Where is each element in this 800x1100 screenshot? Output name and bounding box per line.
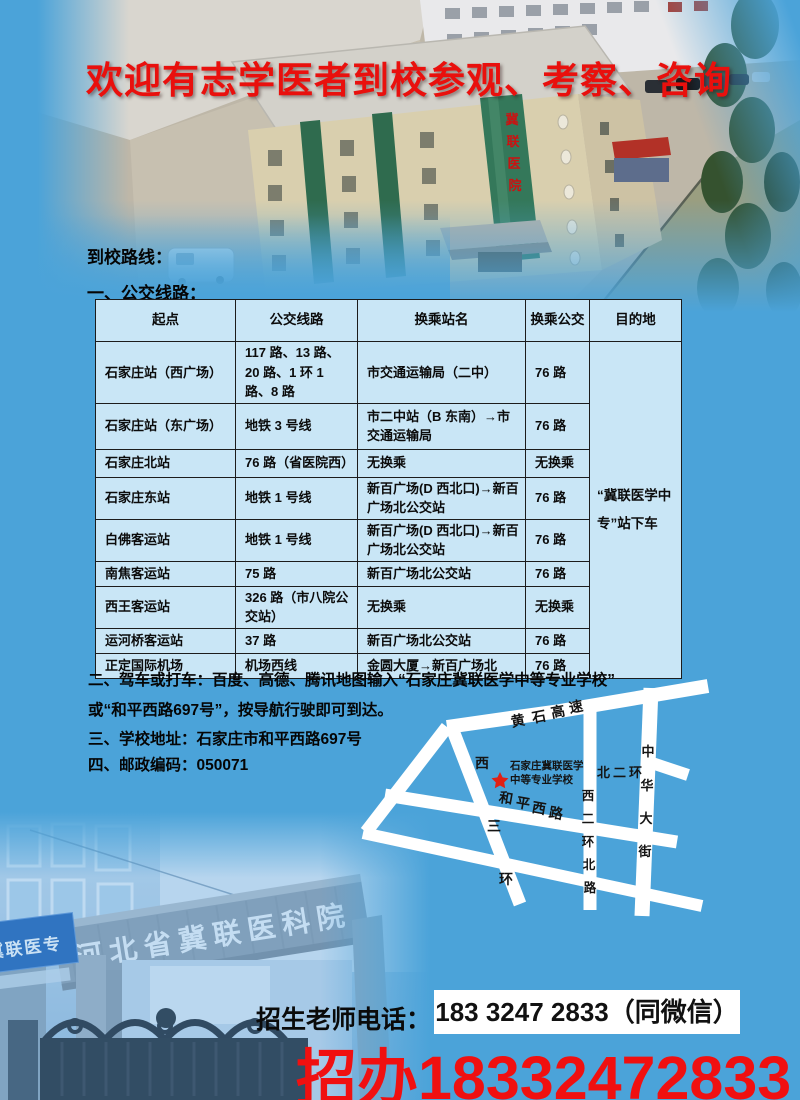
cell-start: 石家庄站（西广场）	[96, 342, 236, 404]
cell-start: 西王客运站	[96, 586, 236, 628]
svg-text:速: 速	[567, 697, 584, 715]
label-north-second-ring: 北二环	[597, 765, 645, 780]
col-header-lines: 公交线路	[236, 300, 358, 342]
bus-routes-table: 起点 公交线路 换乘站名 换乘公交 目的地 石家庄站（西广场） 117 路、13…	[95, 299, 682, 679]
col-header-transfer-bus: 换乘公交	[526, 300, 590, 342]
road-zhonghua-street	[642, 688, 651, 916]
cell-lines: 地铁 1 号线	[236, 477, 358, 519]
cell-transfer-station: 新百广场北公交站	[358, 628, 526, 653]
cell-start: 石家庄北站	[96, 449, 236, 477]
map-school-label-line1: 石家庄冀联医学	[509, 759, 584, 772]
cell-transfer-station: 新百广场(D 西北口)→新百广场北公交站	[358, 519, 526, 561]
svg-text:华: 华	[640, 778, 653, 793]
cell-start: 白佛客运站	[96, 519, 236, 561]
svg-text:西: 西	[531, 799, 548, 817]
table-header-row: 起点 公交线路 换乘站名 换乘公交 目的地	[96, 300, 682, 342]
svg-text:北: 北	[583, 857, 596, 872]
poster-root: 冀 联 医 院	[0, 0, 800, 1100]
cell-start: 运河桥客运站	[96, 628, 236, 653]
cell-start: 石家庄站（东广场）	[96, 403, 236, 449]
cell-transfer-station: 无换乘	[358, 449, 526, 477]
cell-transfer-station: 新百广场(D 西北口)→新百广场北公交站	[358, 477, 526, 519]
location-map: 黄 石 高 速 和 平 西 路 西 三 环 西 二 环 北 路	[340, 678, 800, 954]
road-ring-branch	[366, 727, 447, 832]
svg-text:石: 石	[529, 707, 547, 726]
svg-text:大: 大	[639, 811, 652, 826]
cell-lines: 117 路、13 路、20 路、1 环 1 路、8 路	[236, 342, 358, 404]
cell-destination: “冀联医学中专”站下车	[590, 342, 682, 679]
cell-lines: 地铁 3 号线	[236, 403, 358, 449]
cell-lines: 326 路（市八院公交站）	[236, 586, 358, 628]
cell-lines: 75 路	[236, 561, 358, 586]
svg-text:平: 平	[515, 794, 532, 812]
svg-text:街: 街	[637, 844, 651, 859]
svg-text:黄: 黄	[509, 711, 526, 729]
col-header-destination: 目的地	[590, 300, 682, 342]
cell-transfer-bus: 76 路	[526, 403, 590, 449]
road-heping-west	[385, 795, 677, 842]
cell-transfer-bus: 76 路	[526, 342, 590, 404]
postal-code: 四、邮政编码：050071	[88, 753, 248, 775]
svg-text:路: 路	[584, 880, 597, 895]
table-row: 石家庄站（西广场） 117 路、13 路、20 路、1 环 1 路、8 路 市交…	[96, 342, 682, 404]
school-address: 三、学校地址：石家庄市和平西路697号	[88, 727, 362, 749]
svg-text:环: 环	[499, 871, 513, 887]
cell-transfer-bus: 76 路	[526, 477, 590, 519]
banner-title: 欢迎有志学医者到校参观、考察、咨询	[86, 50, 776, 104]
cell-transfer-bus: 无换乘	[526, 449, 590, 477]
svg-text:中: 中	[641, 744, 654, 759]
svg-text:三: 三	[487, 818, 501, 834]
cell-transfer-bus: 无换乘	[526, 586, 590, 628]
svg-text:西: 西	[475, 755, 489, 771]
cell-start: 南焦客运站	[96, 561, 236, 586]
svg-text:环: 环	[582, 835, 595, 849]
svg-text:和: 和	[498, 789, 515, 807]
col-header-transfer-station: 换乘站名	[358, 300, 526, 342]
col-header-start: 起点	[96, 300, 236, 342]
school-star-marker	[492, 772, 509, 788]
hotline-red-text: 招办18332472833	[296, 1028, 791, 1100]
cell-lines: 76 路（省医院西）	[236, 449, 358, 477]
route-heading: 到校路线：	[87, 243, 172, 268]
svg-text:高: 高	[549, 702, 566, 720]
cell-transfer-bus: 76 路	[526, 561, 590, 586]
cell-transfer-station: 新百广场北公交站	[358, 561, 526, 586]
cell-transfer-station: 市二中站（B 东南）→市交通运输局	[358, 403, 526, 449]
svg-text:西: 西	[582, 789, 595, 803]
cell-transfer-station: 市交通运输局（二中）	[358, 342, 526, 404]
map-school-label-line2: 中等专业学校	[510, 773, 573, 786]
cell-lines: 地铁 1 号线	[236, 519, 358, 561]
cell-lines: 37 路	[236, 628, 358, 653]
cell-transfer-bus: 76 路	[526, 519, 590, 561]
cell-transfer-bus: 76 路	[526, 628, 590, 653]
cell-transfer-station: 无换乘	[358, 586, 526, 628]
svg-text:二: 二	[582, 812, 595, 826]
cell-start: 石家庄东站	[96, 477, 236, 519]
